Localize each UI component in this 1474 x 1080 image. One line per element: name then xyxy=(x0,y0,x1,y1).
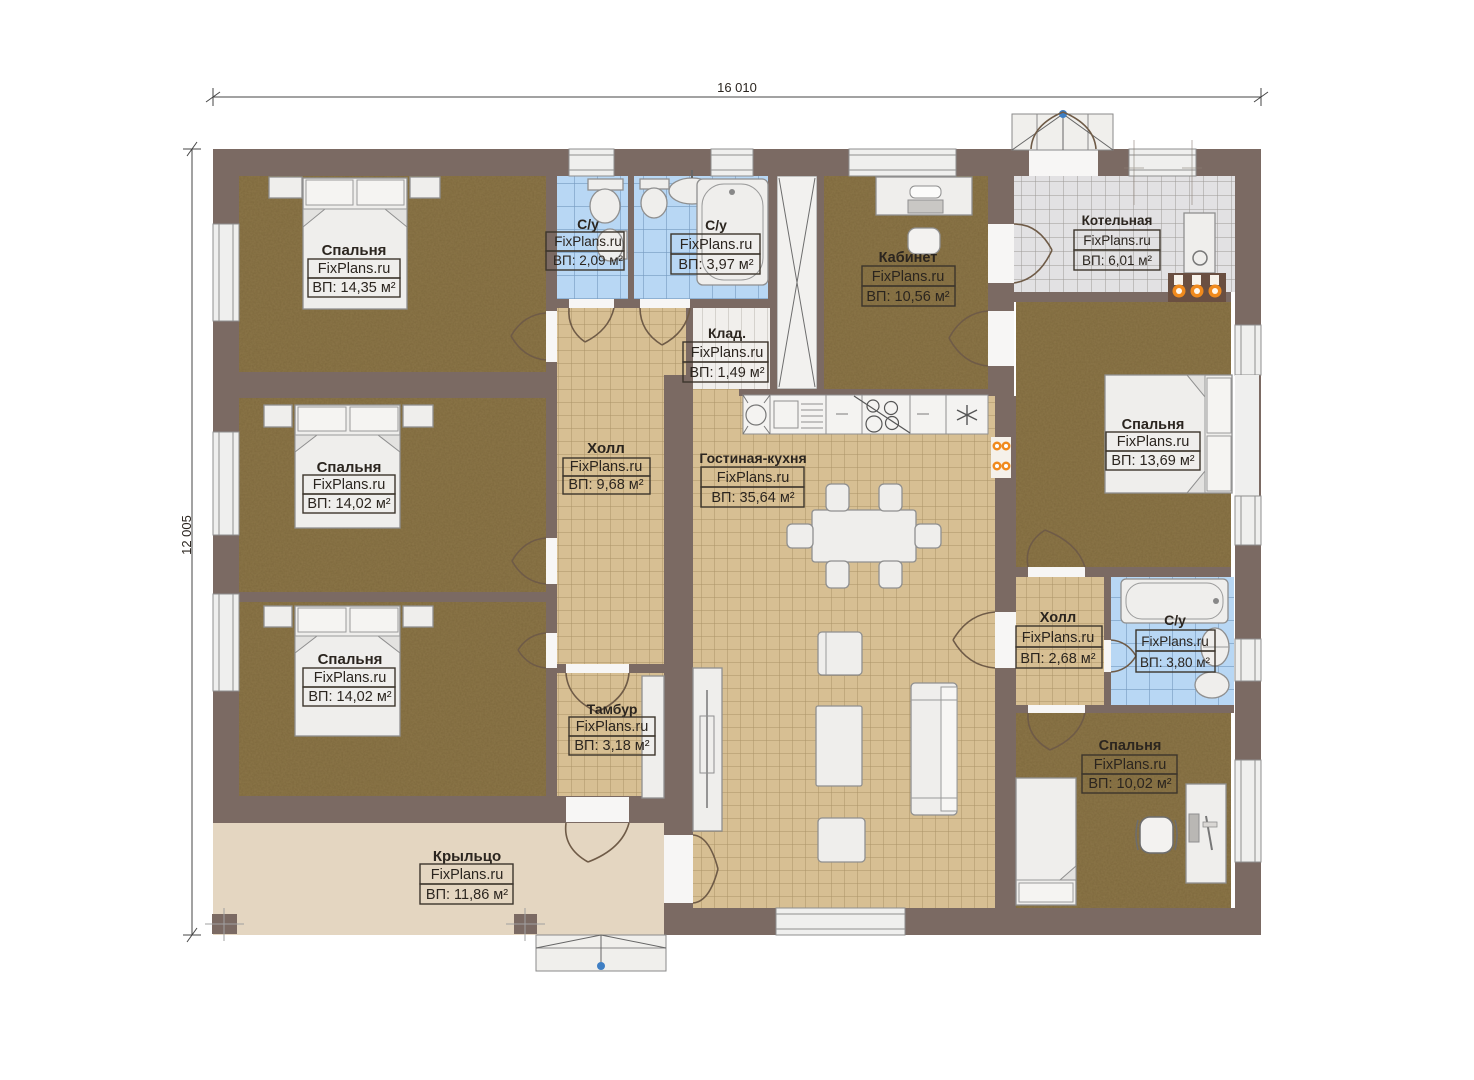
svg-text:FixPlans.ru: FixPlans.ru xyxy=(314,670,387,686)
svg-text:ВП: 14,35 м²: ВП: 14,35 м² xyxy=(312,280,395,296)
svg-text:ВП: 14,02 м²: ВП: 14,02 м² xyxy=(308,689,391,705)
svg-text:ВП: 10,56 м²: ВП: 10,56 м² xyxy=(866,289,949,305)
svg-text:Спальня: Спальня xyxy=(1099,738,1162,754)
svg-text:ВП: 10,02 м²: ВП: 10,02 м² xyxy=(1088,776,1171,792)
svg-text:FixPlans.ru: FixPlans.ru xyxy=(313,477,386,493)
svg-text:Спальня: Спальня xyxy=(317,459,382,476)
svg-text:Гостиная-кухня: Гостиная-кухня xyxy=(699,450,806,466)
svg-text:FixPlans.ru: FixPlans.ru xyxy=(570,459,643,475)
svg-text:ВП: 11,86 м²: ВП: 11,86 м² xyxy=(426,887,508,903)
svg-text:FixPlans.ru: FixPlans.ru xyxy=(431,867,504,883)
svg-text:ВП: 6,01 м²: ВП: 6,01 м² xyxy=(1082,253,1153,268)
svg-text:ВП: 35,64 м²: ВП: 35,64 м² xyxy=(711,490,794,506)
svg-text:Тамбур: Тамбур xyxy=(587,701,638,717)
svg-text:Холл: Холл xyxy=(1040,610,1076,626)
svg-text:ВП: 2,68 м²: ВП: 2,68 м² xyxy=(1020,651,1095,667)
svg-text:Спальня: Спальня xyxy=(318,651,383,668)
svg-text:Холл: Холл xyxy=(587,440,625,457)
svg-text:Клад.: Клад. xyxy=(708,325,746,341)
svg-text:С/у: С/у xyxy=(577,216,599,232)
svg-text:FixPlans.ru: FixPlans.ru xyxy=(1083,233,1151,248)
svg-text:FixPlans.ru: FixPlans.ru xyxy=(691,345,764,361)
svg-text:Спальня: Спальня xyxy=(1122,417,1185,433)
svg-text:FixPlans.ru: FixPlans.ru xyxy=(576,719,649,735)
svg-text:С/у: С/у xyxy=(705,217,727,233)
svg-text:ВП: 14,02 м²: ВП: 14,02 м² xyxy=(307,496,390,512)
svg-text:Котельная: Котельная xyxy=(1082,213,1153,228)
svg-text:ВП: 3,97 м²: ВП: 3,97 м² xyxy=(678,257,753,273)
svg-text:FixPlans.ru: FixPlans.ru xyxy=(554,234,622,249)
svg-text:FixPlans.ru: FixPlans.ru xyxy=(1141,634,1209,649)
svg-text:С/у: С/у xyxy=(1164,612,1186,628)
svg-text:Спальня: Спальня xyxy=(322,242,387,259)
svg-text:12 005: 12 005 xyxy=(179,515,194,555)
svg-text:Кабинет: Кабинет xyxy=(879,250,938,266)
svg-text:FixPlans.ru: FixPlans.ru xyxy=(1094,757,1167,773)
svg-text:16 010: 16 010 xyxy=(717,80,757,95)
svg-text:FixPlans.ru: FixPlans.ru xyxy=(1117,434,1190,450)
svg-text:FixPlans.ru: FixPlans.ru xyxy=(717,470,790,486)
svg-text:FixPlans.ru: FixPlans.ru xyxy=(872,269,945,285)
svg-text:FixPlans.ru: FixPlans.ru xyxy=(1022,630,1095,646)
svg-text:ВП: 13,69 м²: ВП: 13,69 м² xyxy=(1111,453,1194,469)
svg-text:ВП: 1,49 м²: ВП: 1,49 м² xyxy=(689,365,764,381)
svg-text:FixPlans.ru: FixPlans.ru xyxy=(680,237,753,253)
svg-text:Крыльцо: Крыльцо xyxy=(433,848,501,865)
svg-text:ВП: 3,80 м²: ВП: 3,80 м² xyxy=(1140,655,1211,670)
svg-text:FixPlans.ru: FixPlans.ru xyxy=(318,261,391,277)
svg-text:ВП: 3,18 м²: ВП: 3,18 м² xyxy=(574,738,649,754)
svg-text:ВП: 2,09 м²: ВП: 2,09 м² xyxy=(553,253,624,268)
svg-text:ВП: 9,68 м²: ВП: 9,68 м² xyxy=(568,477,643,493)
